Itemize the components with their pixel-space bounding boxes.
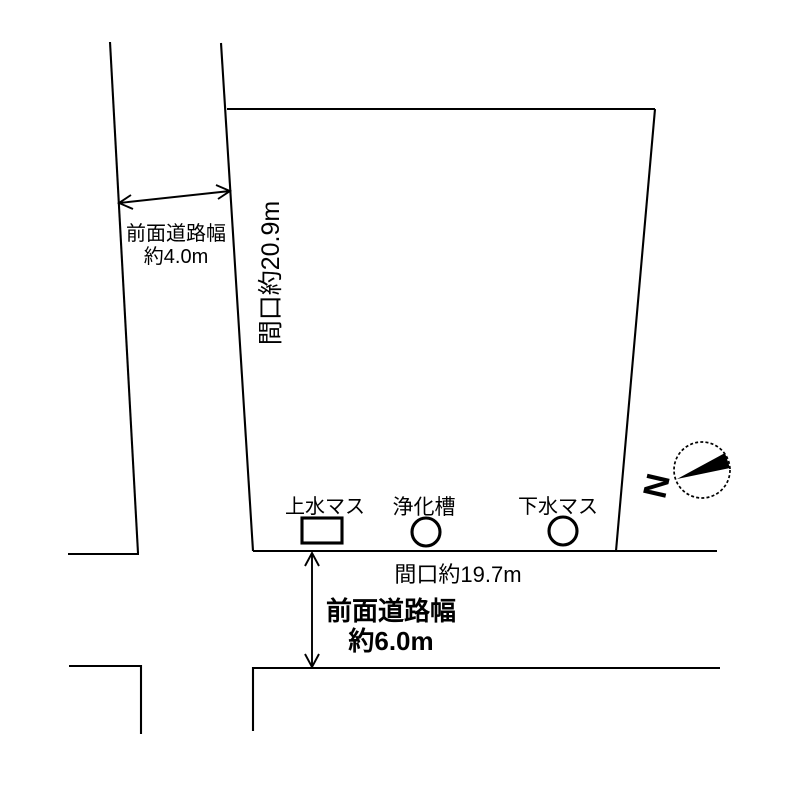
septic-tank-marker xyxy=(412,518,440,546)
bottom-road-width-arrow xyxy=(305,553,319,667)
compass-north-label: N xyxy=(636,470,677,502)
compass-needle-icon xyxy=(677,453,730,479)
west-intersection-south-corner-line xyxy=(69,666,141,734)
plot-west-edge-line xyxy=(221,43,253,551)
site-plan-canvas: N 前面道路幅 約4.0m 間口約20.9m 上水マス 浄化槽 下水マス 間口約… xyxy=(0,0,804,785)
compass: N xyxy=(636,442,730,502)
left-road-width-label: 前面道路幅 xyxy=(126,222,226,245)
water-supply-label: 上水マス xyxy=(285,495,365,518)
left-road-width-arrow-line xyxy=(119,191,230,203)
left-frontage-label: 間口約20.9m xyxy=(257,201,285,345)
left-road-width-arrow xyxy=(119,185,230,209)
bottom-road-width-value: 約6.0m xyxy=(347,626,433,656)
sewer-marker xyxy=(549,517,577,545)
left-road-west-edge-line xyxy=(110,42,138,553)
utility-markers xyxy=(302,517,577,546)
bottom-road-width-label: 前面道路幅 xyxy=(326,596,456,626)
left-road-width-value: 約4.0m xyxy=(144,245,208,268)
sewer-label: 下水マス xyxy=(518,495,598,518)
site-plan: N 前面道路幅 約4.0m 間口約20.9m 上水マス 浄化槽 下水マス 間口約… xyxy=(0,0,804,785)
septic-tank-label: 浄化槽 xyxy=(393,496,456,519)
bottom-road-south-edge-line xyxy=(253,668,720,731)
bottom-frontage-label: 間口約19.7m xyxy=(394,562,521,587)
water-supply-marker xyxy=(302,518,342,543)
